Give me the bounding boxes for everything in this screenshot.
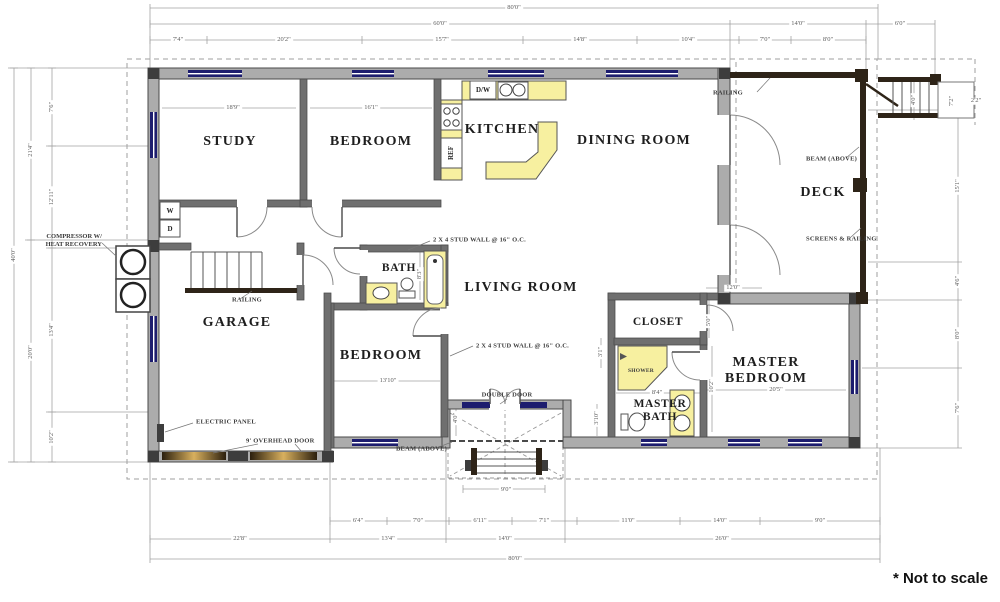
deck-stairs <box>878 77 974 118</box>
dim-label: 15'1" <box>955 177 962 195</box>
dim-label: 20'5" <box>767 387 785 394</box>
dim-label: 20'2" <box>275 37 293 44</box>
dim-label: 22'8" <box>231 536 249 543</box>
dim-label: 80'0" <box>506 556 524 563</box>
dishwasher-label: D/W <box>476 86 490 94</box>
dim-label: 80'0" <box>505 5 523 12</box>
room-label-living: LIVING ROOM <box>464 280 577 296</box>
dim-label: 16'1" <box>362 105 380 112</box>
room-label-closet: CLOSET <box>633 316 683 328</box>
dryer-label: D <box>167 225 172 233</box>
room-label-bedroom-top: BEDROOM <box>330 134 412 150</box>
dim-label: 7'4" <box>171 37 185 44</box>
dim-label: 4'0" <box>911 93 918 107</box>
dim-label: 10'2" <box>709 377 716 395</box>
dim-label: 6'0" <box>893 21 907 28</box>
dim-label: 26'0" <box>713 536 731 543</box>
dim-label: 40'0" <box>11 246 18 264</box>
stove-icon <box>441 104 462 130</box>
toilet-bowl-icon <box>401 278 413 290</box>
room-label-garage: GARAGE <box>203 315 272 331</box>
dim-label: 18'9" <box>224 105 242 112</box>
floor-plan: STUDY BEDROOM KITCHEN DINING ROOM DECK L… <box>0 0 1000 602</box>
dim-label: 7'6" <box>49 100 56 114</box>
dim-label: 7'6" <box>955 401 962 415</box>
front-steps <box>471 448 542 475</box>
not-to-scale-note: * Not to scale <box>893 570 988 587</box>
dim-label: 9'0" <box>499 487 513 494</box>
dim-label: 6'4" <box>351 518 365 525</box>
dim-label: 8'0" <box>955 327 962 341</box>
screens-railing-annotation: SCREENS & RAILING <box>806 236 877 243</box>
railing-annotation: RAILING <box>713 90 743 97</box>
room-label-master-bedroom: MASTER BEDROOM <box>706 355 826 387</box>
bath-sink-icon <box>373 287 389 299</box>
room-label-kitchen: KITCHEN <box>465 122 540 138</box>
dim-label: 14'0" <box>789 21 807 28</box>
dim-label: 13'4" <box>49 321 56 339</box>
compressor-annotation: COMPRESSOR W/ HEAT RECOVERY <box>36 233 102 250</box>
room-label-bedroom-bottom: BEDROOM <box>340 348 422 364</box>
floor-plan-drawing <box>0 0 1000 602</box>
dim-label: 8'0" <box>821 37 835 44</box>
dim-label: 15'7" <box>433 37 451 44</box>
door-arcs <box>237 115 780 404</box>
dim-label: 21'4" <box>28 141 35 159</box>
dim-label: 5'0" <box>706 314 713 328</box>
dim-label: 6'11" <box>471 518 488 525</box>
dim-label: 3'1" <box>598 345 605 359</box>
dim-label: 9'0" <box>813 518 827 525</box>
room-label-study: STUDY <box>203 134 256 150</box>
room-label-dining: DINING ROOM <box>577 133 691 149</box>
dim-label: 7'0" <box>758 37 772 44</box>
bath-fixtures <box>366 251 446 308</box>
dim-label: 12'0" <box>724 285 742 292</box>
electric-panel-icon <box>157 424 164 442</box>
dim-label: 12'11" <box>49 187 56 208</box>
overhead-door-annotation: 9' OVERHEAD DOOR <box>246 438 315 445</box>
electric-panel-annotation: ELECTRIC PANEL <box>196 419 256 426</box>
washer-label: W <box>167 207 174 215</box>
room-label-deck: DECK <box>800 185 845 201</box>
garage-stairs <box>185 252 297 293</box>
dim-label: 10'4" <box>679 37 697 44</box>
beam-above-annotation: BEAM (ABOVE) <box>806 156 857 163</box>
beam-above-annotation: BEAM (ABOVE) <box>396 446 447 453</box>
dim-label: 10'2" <box>49 428 56 446</box>
dim-label: 11'0" <box>619 518 636 525</box>
dim-label: 4'0" <box>453 411 460 425</box>
dim-label: 2'2" <box>969 98 983 105</box>
dim-label: 20'0" <box>28 343 35 361</box>
dim-label: 14'8" <box>571 37 589 44</box>
dim-label: 60'0" <box>431 21 449 28</box>
toilet-tank-icon <box>399 291 415 298</box>
dim-label: 13'10" <box>378 378 399 385</box>
dim-label: 7'1" <box>537 518 551 525</box>
dim-label: 14'0" <box>711 518 729 525</box>
double-door-annotation: DOUBLE DOOR <box>482 392 533 399</box>
stud-wall-annotation: 2 X 4 STUD WALL @ 16" O.C. <box>433 237 526 244</box>
dim-label: 14'0" <box>496 536 514 543</box>
dim-label: 8'4" <box>650 390 664 397</box>
dim-label: 13'4" <box>379 536 397 543</box>
railing-annotation: RAILING <box>232 297 262 304</box>
shower-label: SHOWER <box>628 368 654 374</box>
room-label-bath: BATH <box>382 262 416 274</box>
dim-label: 4'6" <box>955 274 962 288</box>
dim-label: 3'10" <box>594 409 601 427</box>
compressor-icon <box>116 246 150 312</box>
dim-label: 8'3" <box>417 267 424 281</box>
dim-label: 7'0" <box>411 518 425 525</box>
dim-label: 7'2" <box>949 94 956 108</box>
stud-wall-annotation: 2 X 4 STUD WALL @ 16" O.C. <box>476 343 569 350</box>
refrigerator-label: REF <box>447 146 455 160</box>
room-label-master-bath: MASTER BATH <box>625 398 695 424</box>
